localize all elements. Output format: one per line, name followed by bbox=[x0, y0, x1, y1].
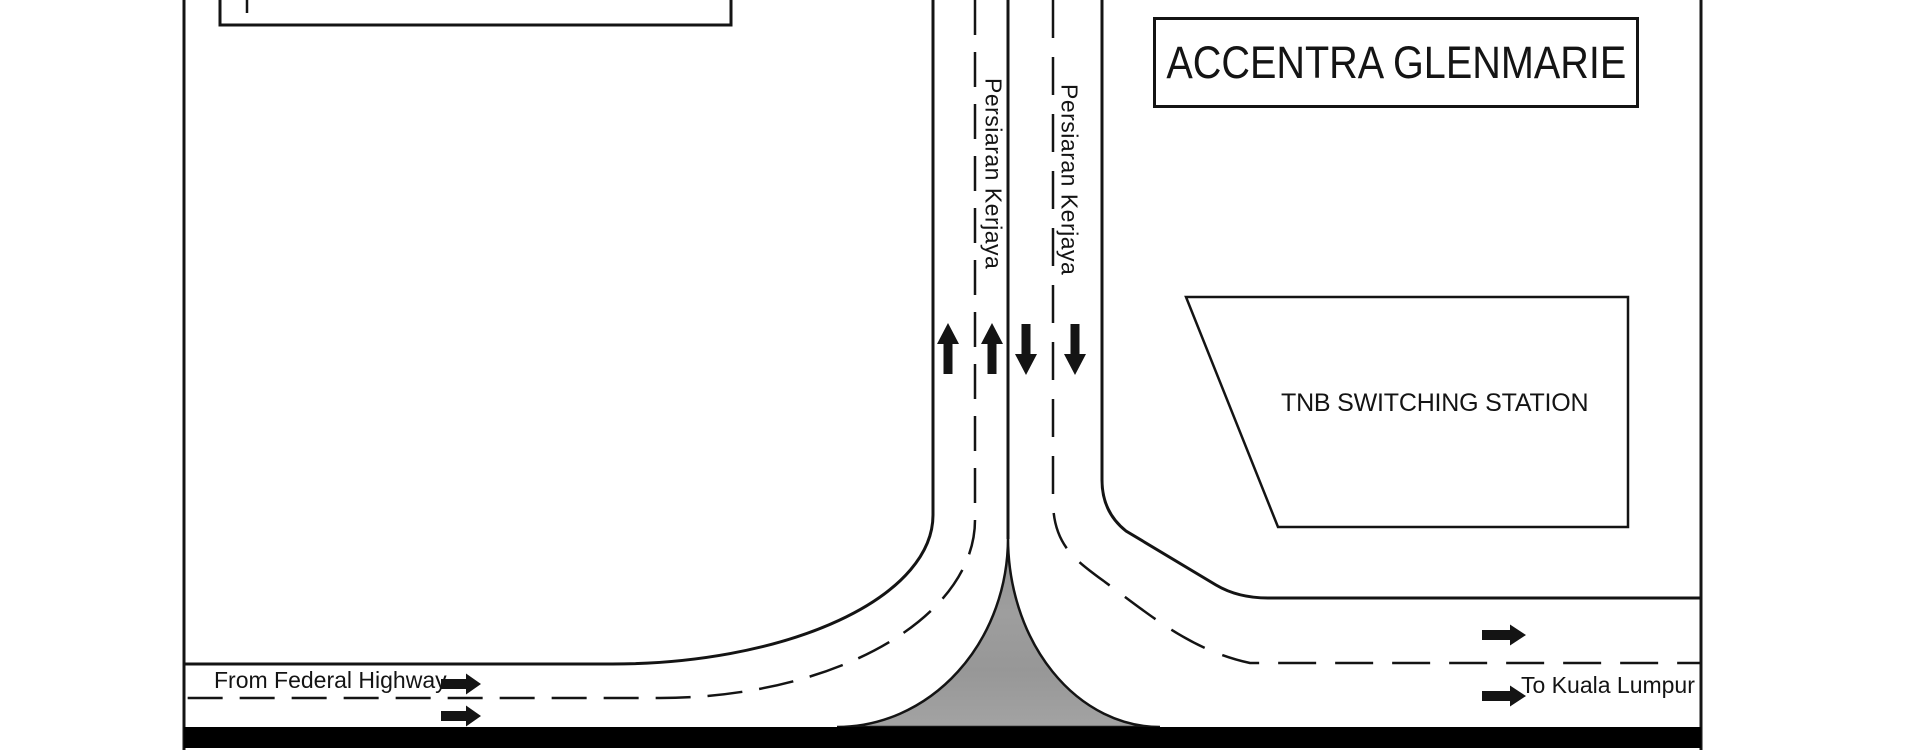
road-name-right: Persiaran Kerjaya bbox=[1055, 84, 1083, 275]
origin-label: From Federal Highway bbox=[214, 669, 447, 692]
north-arrow-icon bbox=[981, 323, 1003, 374]
bottom-road-band bbox=[184, 727, 1701, 748]
south-arrow-icon bbox=[1064, 324, 1086, 375]
development-title-box: ACCENTRA GLENMARIE bbox=[1153, 17, 1639, 108]
development-title: ACCENTRA GLENMARIE bbox=[1166, 37, 1626, 89]
gore-island bbox=[837, 538, 1160, 727]
legend-box-partial bbox=[220, 0, 731, 25]
road-edge-west bbox=[184, 0, 933, 664]
destination-label: To Kuala Lumpur bbox=[1521, 674, 1695, 697]
east-arrow-icon bbox=[441, 674, 481, 695]
road-name-left: Persiaran Kerjaya bbox=[979, 78, 1007, 269]
north-arrow-icon bbox=[937, 323, 959, 374]
east-arrow-icon bbox=[441, 706, 481, 727]
tnb-plot-label: TNB SWITCHING STATION bbox=[1281, 391, 1588, 416]
plan-linework bbox=[0, 0, 1920, 750]
east-arrow-icon bbox=[1482, 625, 1526, 646]
lane-dash-west bbox=[184, 0, 975, 698]
location-plan: ACCENTRA GLENMARIE TNB SWITCHING STATION… bbox=[0, 0, 1920, 750]
east-arrow-icon bbox=[1482, 686, 1526, 707]
south-arrow-icon bbox=[1015, 324, 1037, 375]
